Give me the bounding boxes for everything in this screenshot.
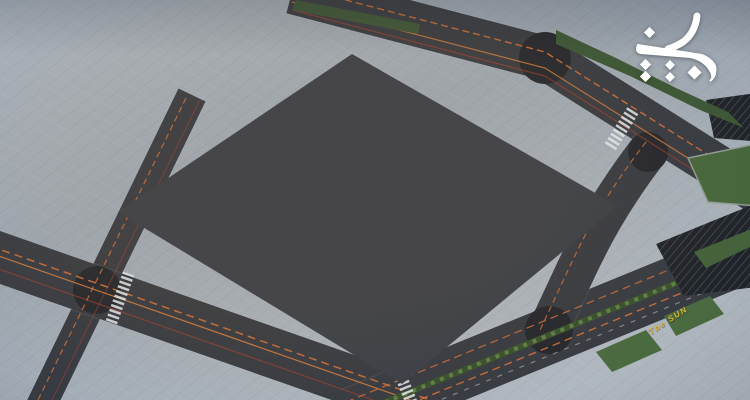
logo-calligraphy-mark: [637, 16, 715, 81]
light-glow: [194, 108, 306, 192]
light-glow: [99, 186, 222, 279]
aerial-render-scene: The SUN: [0, 0, 750, 400]
developer-logo: [626, 2, 746, 112]
